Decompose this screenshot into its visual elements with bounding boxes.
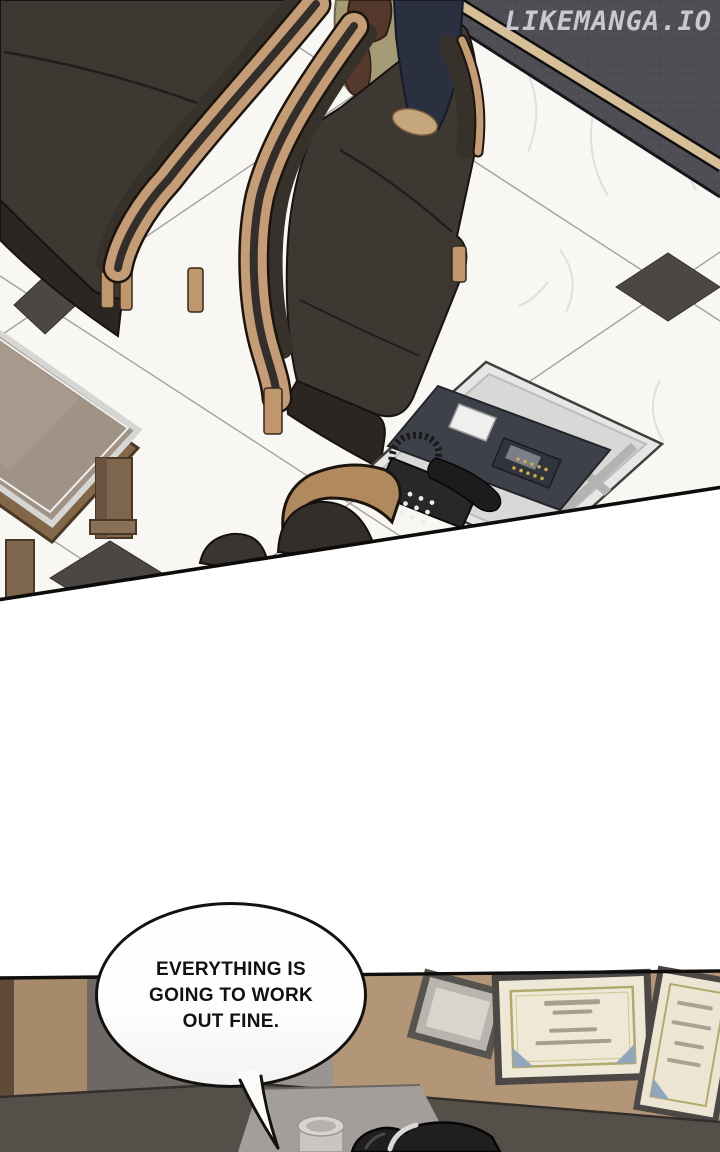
paper-cup <box>298 1116 344 1152</box>
speech-bubble-tail <box>228 1058 298 1152</box>
table-leg <box>90 458 136 538</box>
top-panel-scene <box>0 0 720 606</box>
certificate-center <box>495 972 651 1081</box>
watermark: LIKEMANGA.IO <box>440 6 712 37</box>
manga-page[interactable]: LIKEMANGA.IO <box>0 0 720 1152</box>
table-leg <box>6 540 34 600</box>
speech-bubble-text: EVERYTHING IS GOING TO WORK OUT FINE. <box>149 955 313 1036</box>
